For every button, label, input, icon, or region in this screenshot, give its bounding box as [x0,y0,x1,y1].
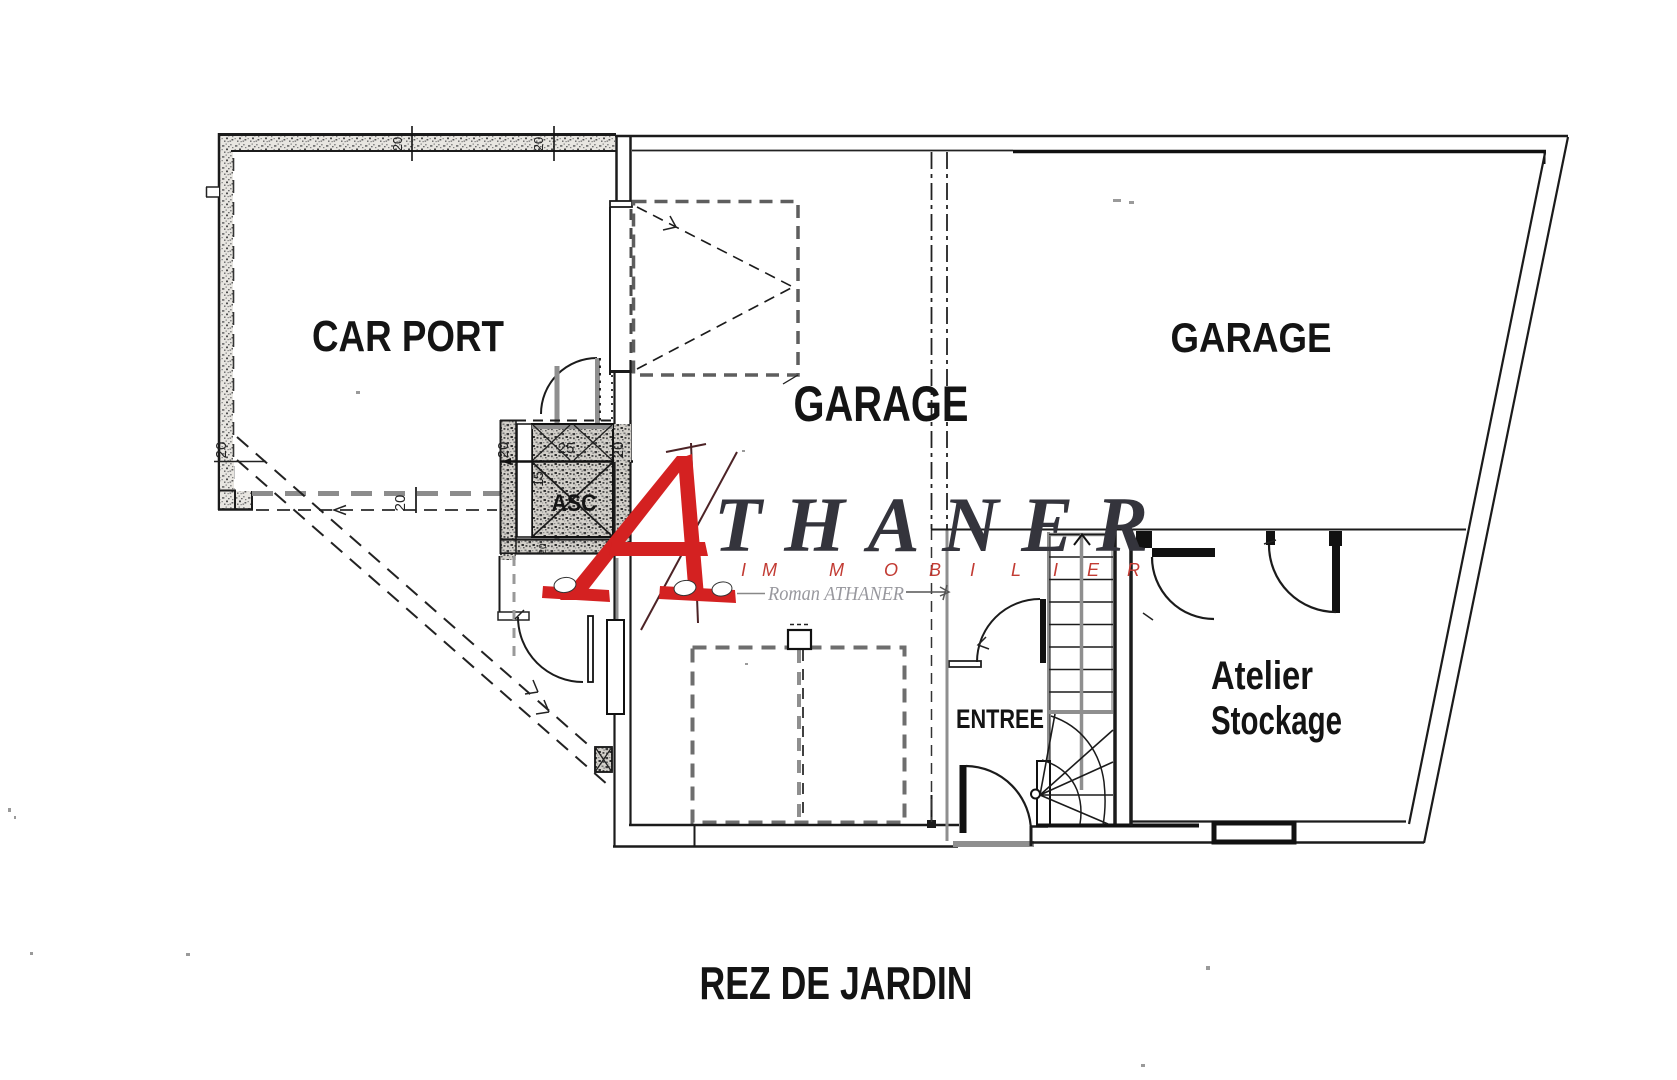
svg-text:REZ DE JARDIN: REZ DE JARDIN [700,957,973,1009]
svg-text:15: 15 [530,471,546,487]
svg-text:20: 20 [610,442,627,459]
svg-text:20: 20 [392,495,409,512]
svg-text:20: 20 [390,137,405,151]
svg-text:ASC: ASC [552,490,597,517]
svg-text:Roman ATHANER: Roman ATHANER [767,583,904,605]
svg-text:20: 20 [213,442,230,459]
svg-text:Atelier: Atelier [1211,654,1313,698]
svg-text:L: L [1011,560,1021,580]
svg-text:M: M [829,560,844,580]
svg-text:I: I [1053,560,1058,580]
svg-text:M: M [762,560,777,580]
svg-text:GARAGE: GARAGE [794,376,969,432]
svg-text:O: O [884,560,898,580]
svg-text:CAR PORT: CAR PORT [312,312,504,361]
svg-text:I: I [741,560,746,580]
svg-text:E: E [1087,560,1100,580]
svg-text:ENTREE: ENTREE [956,704,1044,734]
svg-text:B: B [929,560,941,580]
svg-text:25: 25 [558,440,575,457]
svg-text:Stockage: Stockage [1211,699,1342,743]
svg-text:GARAGE: GARAGE [1171,314,1332,361]
svg-text:20: 20 [538,543,549,555]
svg-text:I: I [970,560,975,580]
svg-text:R: R [1127,560,1140,580]
svg-text:20: 20 [531,137,546,151]
svg-text:20: 20 [495,442,512,459]
